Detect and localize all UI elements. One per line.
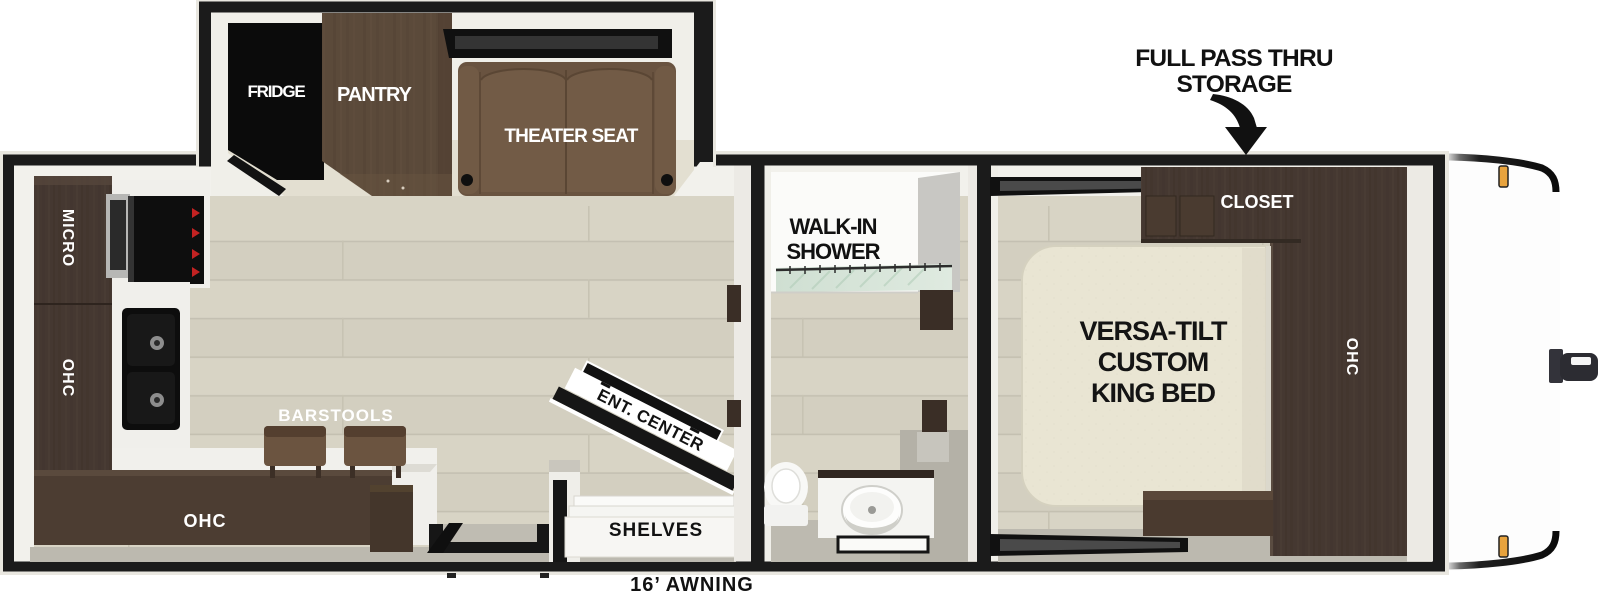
svg-text:MICRO: MICRO [59, 209, 76, 267]
svg-text:FRIDGE: FRIDGE [247, 82, 305, 101]
svg-text:OHC: OHC [1343, 338, 1360, 377]
svg-text:FULL PASS THRU: FULL PASS THRU [1135, 45, 1333, 72]
svg-text:VERSA-TILT: VERSA-TILT [1080, 316, 1228, 346]
svg-text:THEATER SEAT: THEATER SEAT [504, 126, 638, 147]
svg-text:STORAGE: STORAGE [1176, 71, 1292, 98]
svg-text:WALK-IN: WALK-IN [789, 214, 876, 239]
svg-text:BARSTOOLS: BARSTOOLS [278, 406, 393, 425]
svg-text:16’ AWNING: 16’ AWNING [630, 574, 754, 591]
svg-text:KING BED: KING BED [1091, 378, 1216, 408]
svg-text:PANTRY: PANTRY [337, 84, 413, 106]
svg-text:SHOWER: SHOWER [787, 239, 881, 264]
svg-text:CUSTOM: CUSTOM [1098, 347, 1209, 377]
svg-text:CLOSET: CLOSET [1220, 192, 1293, 212]
svg-text:OHC: OHC [59, 359, 76, 398]
svg-text:SHELVES: SHELVES [609, 520, 703, 541]
svg-text:OHC: OHC [184, 511, 227, 531]
